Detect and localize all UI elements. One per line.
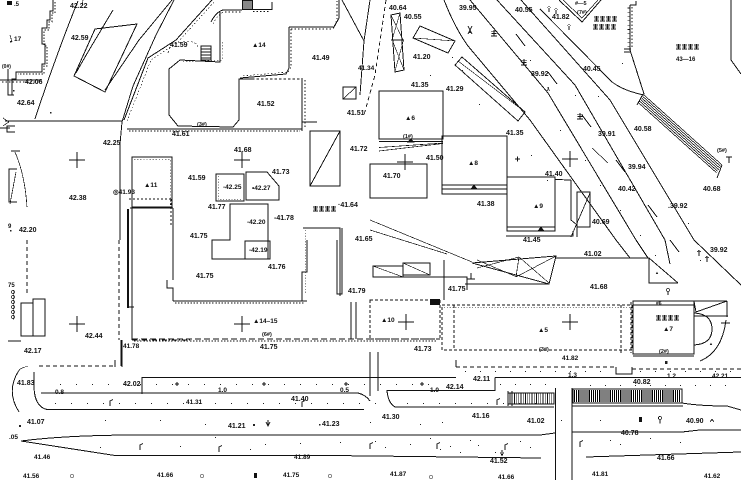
svg-text:41.76: 41.76: [268, 264, 286, 271]
svg-text:42.22: 42.22: [70, 3, 88, 10]
svg-text:41.82: 41.82: [562, 355, 579, 362]
svg-text:39.91: 39.91: [598, 131, 616, 138]
svg-text:41.29: 41.29: [446, 86, 464, 93]
svg-text:▲14: ▲14: [252, 42, 266, 49]
svg-text:ƛ: ƛ: [547, 87, 550, 93]
svg-text:(7#): (7#): [577, 10, 587, 16]
svg-text:41.83: 41.83: [17, 380, 35, 387]
svg-text:41.87: 41.87: [390, 471, 407, 478]
svg-text:41.79: 41.79: [348, 288, 366, 295]
svg-text:#6: #6: [656, 301, 662, 307]
svg-text:42.64: 42.64: [17, 100, 35, 107]
svg-text:41.75: 41.75: [260, 344, 278, 351]
svg-text:42.25: 42.25: [103, 140, 121, 147]
svg-text:40.55: 40.55: [515, 7, 533, 14]
svg-text:41.07: 41.07: [27, 419, 45, 426]
svg-text:42.14: 42.14: [446, 384, 464, 391]
svg-text:▲14–15: ▲14–15: [253, 318, 278, 325]
svg-text:▲7: ▲7: [663, 326, 673, 333]
svg-text:41.68: 41.68: [590, 284, 608, 291]
svg-text:41.35: 41.35: [411, 82, 429, 89]
svg-text:•42.27: •42.27: [252, 185, 271, 192]
svg-text:41.51: 41.51: [347, 110, 365, 117]
svg-text:17: 17: [14, 36, 22, 43]
svg-text:40.78: 40.78: [621, 430, 639, 437]
svg-text:39.92: 39.92: [531, 71, 549, 78]
svg-text:41.68: 41.68: [234, 147, 252, 154]
svg-text:▲9: ▲9: [533, 203, 543, 210]
svg-text:41.31: 41.31: [186, 399, 203, 406]
svg-text:40.58: 40.58: [634, 126, 652, 133]
svg-text:(0#): (0#): [2, 64, 11, 70]
svg-text:41.66: 41.66: [657, 455, 675, 462]
svg-text:-42.25: -42.25: [223, 184, 242, 191]
svg-text:41.02: 41.02: [527, 418, 545, 425]
svg-text:43—16: 43—16: [676, 57, 696, 63]
svg-text:1.0: 1.0: [430, 387, 439, 394]
svg-text:41.77: 41.77: [208, 204, 226, 211]
svg-text:41.23: 41.23: [322, 421, 340, 428]
svg-text:·41.64: ·41.64: [338, 202, 358, 209]
svg-text:42.11: 42.11: [473, 376, 490, 383]
svg-text:40.69: 40.69: [592, 219, 610, 226]
svg-text:39.94: 39.94: [628, 164, 646, 171]
svg-text:41.35: 41.35: [506, 130, 524, 137]
svg-text:41.89: 41.89: [294, 454, 311, 461]
svg-text:41.52: 41.52: [490, 458, 508, 465]
svg-text:41.40: 41.40: [291, 396, 309, 403]
svg-text:-42.19: -42.19: [249, 247, 268, 254]
svg-text:41.73: 41.73: [414, 346, 432, 353]
svg-text:42.02: 42.02: [123, 381, 141, 388]
svg-text:1.0: 1.0: [218, 387, 227, 394]
svg-text:41.56: 41.56: [23, 473, 40, 480]
svg-text:(5#): (5#): [717, 148, 727, 154]
svg-text:42.06: 42.06: [25, 79, 43, 86]
svg-text:40.64: 40.64: [389, 5, 407, 12]
svg-text:40.90: 40.90: [686, 418, 704, 425]
svg-text:42.38: 42.38: [69, 195, 87, 202]
svg-text:41.30: 41.30: [382, 414, 400, 421]
svg-text:-42.20: -42.20: [247, 219, 266, 226]
svg-text:41.62: 41.62: [704, 473, 721, 480]
svg-text:40.68: 40.68: [703, 186, 721, 193]
svg-text:(3#): (3#): [197, 122, 207, 128]
svg-text:41.70: 41.70: [383, 173, 401, 180]
svg-text:41.59: 41.59: [170, 42, 188, 49]
svg-text:▲11: ▲11: [144, 182, 158, 189]
svg-text:40.45: 40.45: [583, 66, 601, 73]
svg-text:42.59: 42.59: [71, 35, 89, 42]
svg-text:41.73: 41.73: [272, 169, 290, 176]
svg-text:42.44: 42.44: [85, 333, 103, 340]
svg-text:▲10: ▲10: [381, 317, 395, 324]
svg-text:41.78: 41.78: [123, 343, 140, 350]
svg-text:▲8: ▲8: [468, 160, 478, 167]
svg-text:39.95: 39.95: [459, 5, 477, 12]
svg-text:▲: ▲: [655, 270, 659, 275]
svg-text:0.8: 0.8: [55, 389, 64, 396]
svg-text:1.2: 1.2: [667, 373, 676, 380]
svg-text:41.66: 41.66: [157, 472, 174, 479]
svg-text:41.21: 41.21: [228, 423, 246, 430]
svg-text:41.61: 41.61: [172, 131, 190, 138]
svg-text:(6#): (6#): [262, 332, 272, 338]
svg-text:41.50: 41.50: [426, 155, 444, 162]
svg-text:41.34: 41.34: [358, 65, 375, 72]
svg-text:42.20: 42.20: [19, 227, 37, 234]
svg-text:-41.78: -41.78: [274, 215, 294, 222]
svg-text:40.82: 40.82: [633, 379, 651, 386]
svg-text:41.16: 41.16: [472, 413, 490, 420]
svg-text:41.46: 41.46: [34, 454, 51, 461]
svg-text:42.21: 42.21: [712, 373, 729, 380]
svg-text:41.81: 41.81: [592, 471, 609, 478]
svg-text:.5: .5: [14, 2, 20, 8]
svg-text:41.66: 41.66: [498, 474, 515, 480]
svg-text:41.75: 41.75: [448, 286, 466, 293]
svg-text:#—5: #—5: [575, 1, 587, 7]
svg-text:.39.92: .39.92: [668, 203, 688, 210]
svg-text:41.65: 41.65: [355, 236, 373, 243]
svg-text:(2#): (2#): [659, 349, 669, 355]
svg-text:(3#): (3#): [539, 347, 549, 353]
svg-text:41.52: 41.52: [257, 101, 275, 108]
svg-text:▲6: ▲6: [405, 115, 415, 122]
svg-text:41.82: 41.82: [552, 14, 570, 21]
svg-text:41.75: 41.75: [190, 233, 208, 240]
svg-text:75: 75: [8, 283, 15, 289]
svg-text:41.75: 41.75: [283, 472, 300, 479]
svg-text:40.42: 40.42: [618, 186, 636, 193]
svg-text:.05: .05: [9, 434, 18, 441]
svg-text:41.59: 41.59: [188, 175, 206, 182]
svg-text:39.92: 39.92: [710, 247, 728, 254]
svg-text:41.38: 41.38: [477, 201, 495, 208]
svg-text:▲: ▲: [709, 341, 713, 346]
svg-text:41.20: 41.20: [413, 54, 431, 61]
svg-text:41.49: 41.49: [312, 55, 330, 62]
svg-text:40.55: 40.55: [404, 14, 422, 21]
svg-text:0.5: 0.5: [340, 387, 349, 394]
svg-text:▲5: ▲5: [538, 327, 548, 334]
svg-text:42.17: 42.17: [24, 348, 42, 355]
svg-text:41.40: 41.40: [545, 171, 563, 178]
svg-text:41.75: 41.75: [196, 273, 214, 280]
svg-text:41.72: 41.72: [350, 146, 368, 153]
svg-text:41.02: 41.02: [584, 251, 602, 258]
svg-text:41.45: 41.45: [523, 237, 541, 244]
